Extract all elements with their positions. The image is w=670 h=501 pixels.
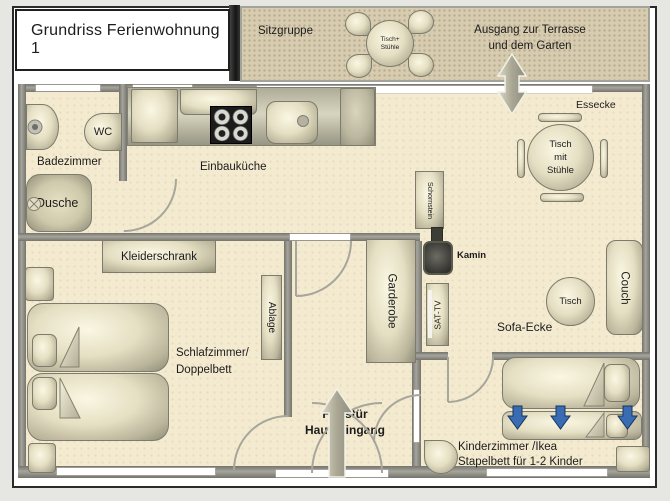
dining-chair-top (538, 113, 582, 122)
nightstand (616, 446, 650, 472)
burner (232, 109, 250, 125)
shower-label: Dusche (36, 196, 78, 210)
pillow (32, 334, 57, 367)
dining-label: Essecke (576, 99, 616, 111)
fireplace (423, 241, 453, 275)
terrace-chair-bottom-right (408, 53, 434, 77)
couch: Couch (606, 240, 643, 335)
bathroom-label: Badezimmer (37, 156, 102, 168)
window-kids-room (487, 469, 607, 476)
window-bedroom (57, 468, 215, 475)
nightstand (28, 443, 56, 473)
wall-kids-north-left (413, 352, 448, 360)
hall-closet: Garderobe (366, 239, 416, 363)
kitchen-end-cabinet (340, 88, 375, 146)
bathroom-sink (26, 104, 59, 150)
dining-chair-left (517, 139, 525, 178)
stove (210, 106, 252, 144)
kitchen-label: Einbauküche (200, 161, 267, 173)
wall-bedroom-east (284, 241, 292, 417)
pillow (606, 414, 628, 438)
terrace-table: Tisch+ Stühle (366, 20, 414, 67)
opening-kids-door (414, 390, 419, 442)
opening-front-door (276, 470, 388, 477)
dining-table: Tisch mit Stühle (527, 124, 594, 191)
pillow (604, 364, 630, 402)
toilet: WC (84, 113, 122, 151)
terrace-label: Sitzgruppe (258, 25, 313, 37)
floor-plan-page: Grundriss Ferienwohnung 1 Sitzgruppe Tis… (0, 0, 670, 501)
wardrobe: Kleiderschrank (102, 240, 216, 273)
terrace-chair-bottom-left (346, 54, 372, 78)
terrace-exit-label: Ausgang zur Terrasse und dem Garten (450, 22, 610, 54)
window-bathroom (36, 85, 100, 91)
fireplace-label: Kamin (457, 250, 486, 261)
dining-chair-bottom (540, 193, 584, 202)
entrance-label: Haustür Haupteingang (295, 406, 395, 438)
kids-room-label: Kinderzimmer /Ikea Stapelbett für 1-2 Ki… (458, 440, 583, 470)
corner-plant (424, 440, 458, 474)
bedroom-label: Schlafzimmer/ Doppelbett (176, 345, 249, 379)
pillow (32, 377, 57, 410)
shelf: Ablage (261, 275, 282, 360)
kitchen-sink (266, 101, 318, 144)
page-title: Grundriss Ferienwohnung 1 (31, 22, 228, 58)
burner (232, 126, 250, 142)
tv-screen (428, 290, 432, 338)
burner (213, 126, 231, 142)
kitchen-fridge (131, 89, 178, 143)
opening-hall-door (290, 234, 350, 240)
chimney: Schornstein (415, 171, 444, 229)
dining-chair-right (600, 139, 608, 178)
sofa-corner-label: Sofa-Ecke (497, 320, 552, 334)
sofa-table: Tisch (546, 277, 595, 326)
title-terrace-divider (229, 5, 240, 81)
wall-outer-right (642, 84, 650, 478)
terrace-chair-top-right (408, 10, 434, 34)
nightstand (25, 267, 54, 301)
title-box: Grundriss Ferienwohnung 1 (15, 9, 230, 71)
terrace-chair-top-left (345, 12, 371, 36)
burner (213, 109, 231, 125)
wall-middle-horizontal (18, 233, 420, 241)
